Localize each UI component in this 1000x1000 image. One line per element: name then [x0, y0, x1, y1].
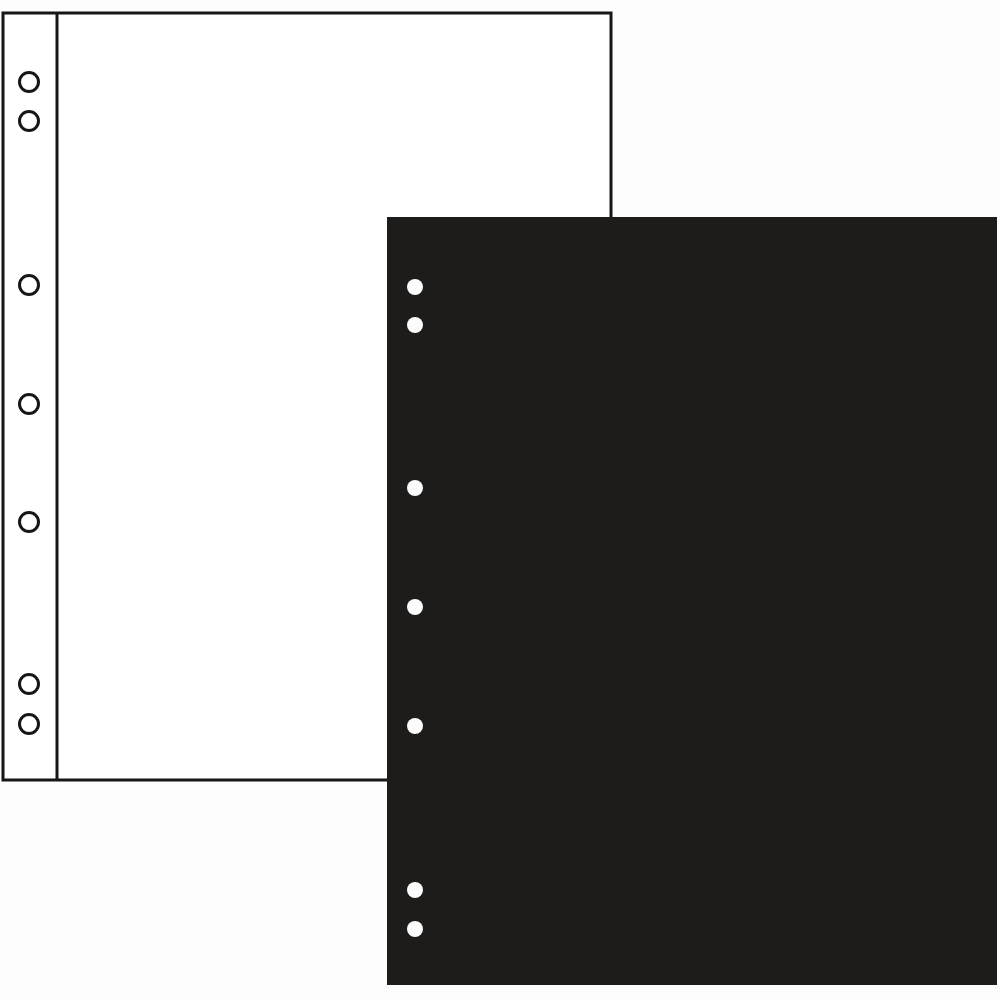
black-page-binder-hole	[407, 480, 423, 496]
black-page-binder-hole	[407, 599, 423, 615]
album-pages-scene	[0, 0, 1000, 1000]
white-page-binder-hole	[20, 112, 39, 131]
white-page-binder-hole	[20, 675, 39, 694]
black-album-page	[387, 217, 997, 985]
product-photo	[0, 0, 1000, 1000]
white-page-binder-hole	[20, 395, 39, 414]
black-page-binder-hole	[407, 921, 423, 937]
black-page-binder-hole	[407, 882, 423, 898]
white-page-binder-hole	[20, 276, 39, 295]
black-page-binder-hole	[407, 718, 423, 734]
white-page-binder-hole	[20, 73, 39, 92]
black-page-binder-hole	[407, 279, 423, 295]
black-page-sheet	[387, 217, 997, 985]
black-page-binder-hole	[407, 317, 423, 333]
white-page-binder-hole	[20, 715, 39, 734]
white-page-binder-hole	[20, 513, 39, 532]
